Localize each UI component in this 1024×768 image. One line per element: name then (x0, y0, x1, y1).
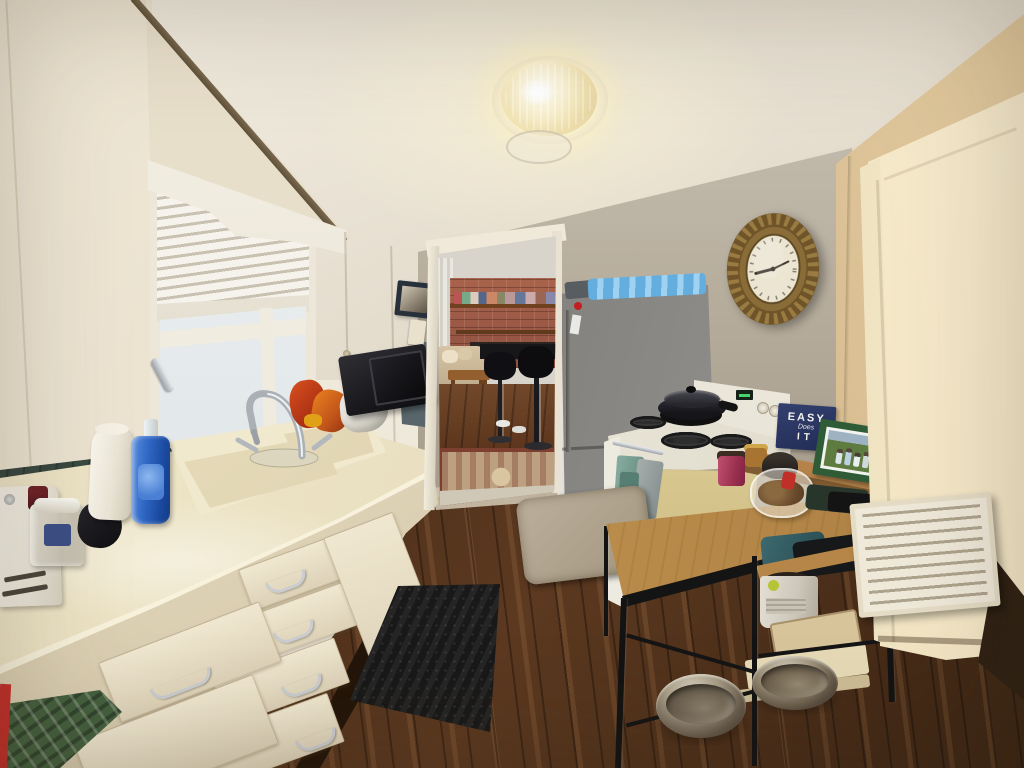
dish-soap-label (138, 464, 164, 500)
bucket-label (766, 598, 806, 614)
glass-jar-label (44, 524, 71, 546)
bar-stool-post (534, 376, 539, 446)
appliance-dial (4, 494, 15, 505)
wall-clock (719, 206, 827, 332)
photo-person (835, 448, 843, 464)
sneaker (496, 420, 510, 427)
bar-stool-post (498, 378, 502, 440)
pillow (442, 350, 458, 363)
ceiling-medallion (506, 130, 572, 164)
ceiling-light-hotspot (520, 78, 554, 106)
kitchen-photo: EASY Does IT (0, 0, 1024, 768)
pet-bowl-interior (666, 684, 736, 724)
pillow (458, 348, 472, 360)
photo-person (843, 448, 852, 466)
pet-bowl-interior (761, 664, 829, 698)
table-leg (604, 526, 608, 636)
bar-stool-base (488, 436, 512, 443)
sign-text: IT (796, 431, 814, 443)
coil-burner (661, 432, 711, 449)
wall-shelf (450, 304, 560, 308)
bar-stool-seat (518, 346, 554, 378)
photo-person (852, 452, 860, 467)
magenta-candle-jar (718, 456, 745, 486)
table-leg (752, 556, 757, 766)
stove-knob (757, 402, 769, 414)
stove-clock-digits (739, 394, 750, 397)
microwave-door (368, 350, 429, 406)
bar-stool-base (524, 442, 552, 450)
snack-bag (304, 414, 322, 427)
sneaker (512, 426, 526, 433)
wall-shelf (456, 330, 560, 334)
glass-jar-lid (34, 498, 80, 513)
vent-slats (862, 504, 988, 606)
paper-towel-top (95, 423, 129, 435)
doorway-to-living-room (434, 234, 560, 506)
tennis-ball (768, 580, 779, 591)
power-outlet (408, 319, 427, 346)
photo-person (861, 452, 869, 469)
pan-lid-knob (686, 386, 696, 393)
fridge-magnet (574, 302, 582, 310)
small-wall-frame-picture (400, 286, 429, 314)
bar-stool-seat (484, 352, 516, 380)
book-shelf-items (454, 292, 556, 304)
paper-towel-roll (88, 425, 136, 521)
louvered-vent (849, 492, 1000, 618)
